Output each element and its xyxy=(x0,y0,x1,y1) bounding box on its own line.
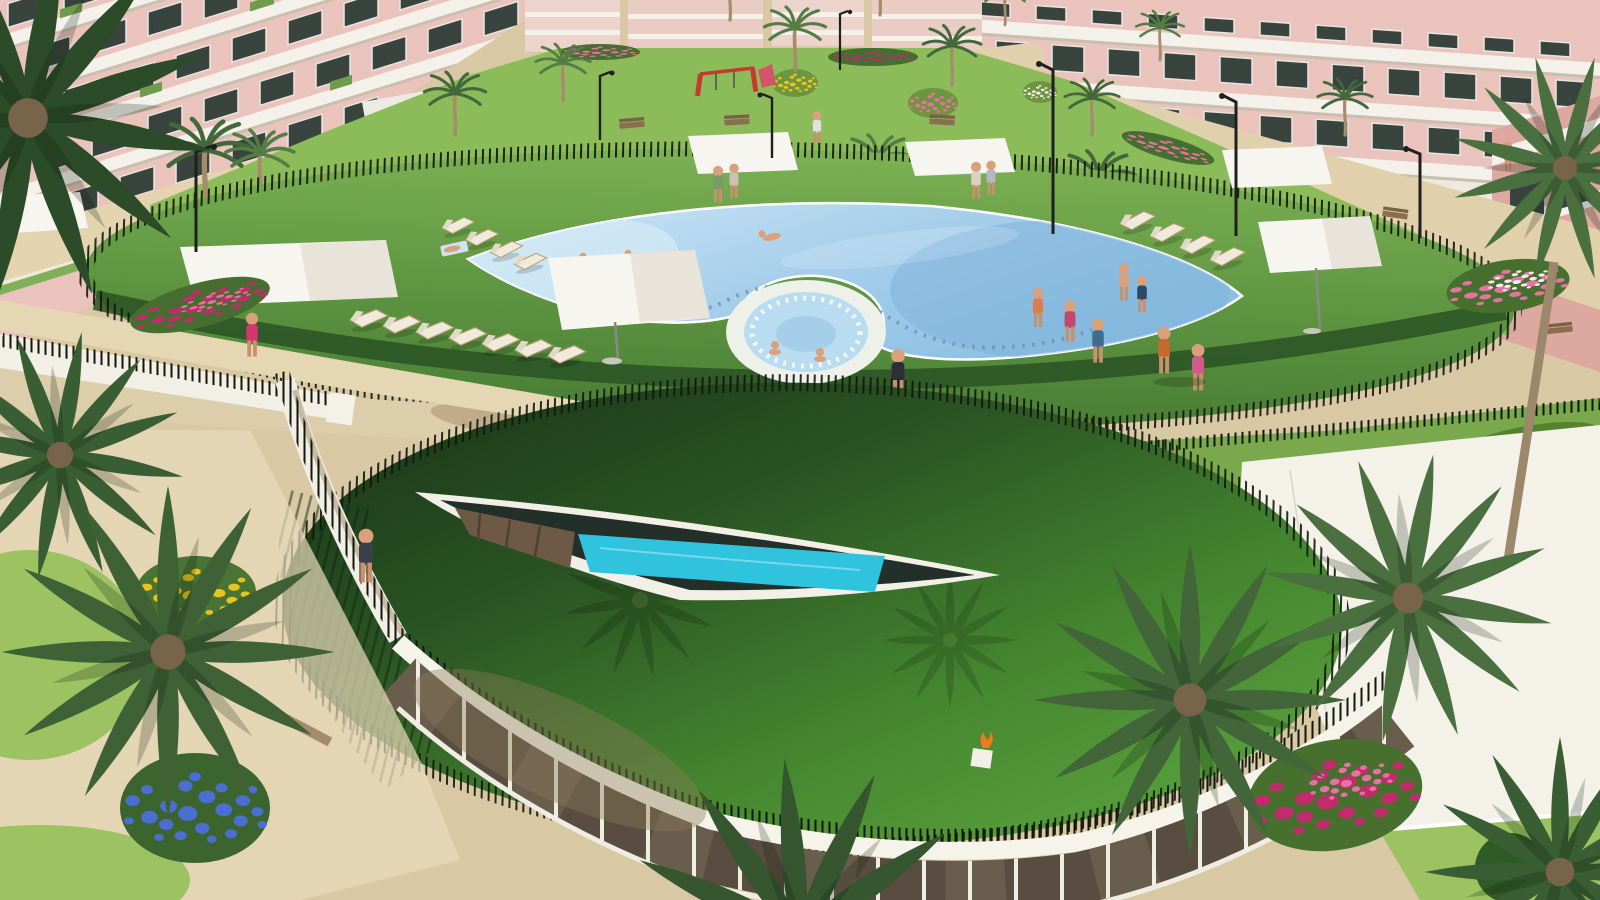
spa-pool xyxy=(726,280,886,384)
umbrella-top-1 xyxy=(688,132,798,174)
garden-bench xyxy=(929,114,955,125)
umbrella-top-3 xyxy=(1222,146,1332,188)
flower-bed-blue-hydrangea xyxy=(120,753,270,863)
scene-canvas xyxy=(0,0,1600,900)
umbrella-top-2 xyxy=(905,138,1015,176)
flower-circle-pink xyxy=(908,88,958,118)
gate-pillar xyxy=(326,392,356,425)
resort-aerial-render xyxy=(0,0,1600,900)
garden-bench xyxy=(724,114,750,125)
flower-circle-yellow xyxy=(772,69,818,97)
